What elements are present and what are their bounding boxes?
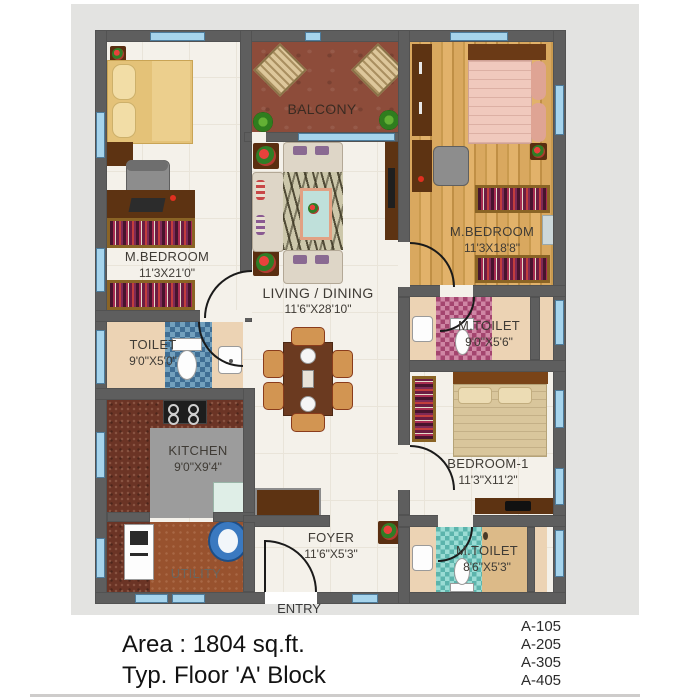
- flower-icon: [112, 48, 124, 60]
- sofa-cushion: [315, 146, 329, 155]
- potted-plant-icon: [253, 112, 273, 132]
- wall-kitchen-top: [95, 388, 255, 400]
- window: [555, 390, 564, 428]
- pillow: [112, 102, 136, 138]
- sofa-pillow: [256, 215, 265, 235]
- door-gap: [398, 242, 410, 287]
- room-name: M.BEDROOM: [440, 224, 544, 241]
- room-label-kitchen: KITCHEN 9'0"X9'4": [150, 443, 246, 475]
- lamp-icon: [418, 176, 424, 182]
- room-name: LIVING / DINING: [256, 284, 380, 302]
- window: [555, 85, 564, 135]
- foyer-flower-pot: [378, 521, 400, 544]
- wardrobe: [475, 185, 550, 213]
- sink-basin-icon: [130, 531, 148, 545]
- wardrobe-handle: [419, 62, 422, 74]
- unit-number: A-405: [521, 672, 561, 690]
- washing-basin: [208, 520, 248, 562]
- entry-label: ENTRY: [260, 601, 338, 618]
- room-label-bedroom1: BEDROOM-1 11'3"X11'2": [437, 456, 539, 488]
- desk-lamp-icon: [170, 195, 176, 201]
- plate-icon: [300, 348, 316, 364]
- room-dim: 11'3X21'0": [117, 266, 217, 282]
- wash-basin: [412, 545, 433, 571]
- door-gap: [398, 445, 410, 490]
- flower-icon: [381, 523, 398, 540]
- balcony-sliding-window: [298, 133, 395, 141]
- room-label-m-bedroom-left: M.BEDROOM 11'3X21'0": [117, 249, 217, 281]
- wall-foyer-right: [398, 527, 410, 604]
- flower-pot: [253, 250, 279, 276]
- sofa-two-seater: [283, 142, 343, 174]
- window: [555, 468, 564, 505]
- area-text: Area : 1804 sq.ft.: [122, 629, 305, 660]
- wall-utility-stub: [107, 512, 150, 522]
- plate-icon: [300, 396, 316, 412]
- wash-basin: [412, 316, 433, 342]
- door-gap: [438, 515, 473, 527]
- room-dim: 11'3"X11'2": [437, 473, 539, 489]
- room-dim: 11'3X18'8": [440, 241, 544, 257]
- coffee-table: [300, 188, 332, 240]
- pillow: [112, 64, 136, 100]
- window: [352, 594, 378, 603]
- dining-chair: [291, 413, 325, 432]
- room-name: KITCHEN: [150, 443, 246, 460]
- room-dim: 9'0"X5'6": [439, 335, 539, 351]
- window: [150, 32, 205, 41]
- window: [96, 432, 105, 478]
- unit-number: A-205: [521, 636, 561, 654]
- bolster-pillow: [531, 61, 546, 100]
- burner-icon: [188, 414, 199, 425]
- room-label-m-bedroom-right: M.BEDROOM 11'3X18'8": [440, 224, 544, 256]
- window: [96, 112, 105, 158]
- unit-number: A-305: [521, 654, 561, 672]
- dining-chair: [332, 382, 353, 410]
- flower-icon: [256, 146, 276, 166]
- sofa-two-seater: [283, 250, 343, 284]
- window: [555, 530, 564, 577]
- drainboard-icon: [130, 553, 148, 556]
- laptop-icon: [129, 198, 166, 212]
- room-name: BALCONY: [272, 100, 372, 118]
- room-name: M.BEDROOM: [117, 249, 217, 266]
- room-name: UTILITY: [160, 566, 232, 583]
- window: [172, 594, 205, 603]
- utility-sink-counter: [124, 524, 154, 580]
- balcony-opening: [252, 132, 266, 142]
- room-label-m-toilet-bottom: M.TOILET 8'6"X5'3": [437, 543, 537, 575]
- room-name: BEDROOM-1: [437, 456, 539, 473]
- bed-left-sheet: [152, 61, 190, 141]
- window: [96, 248, 105, 292]
- sofa-cushion: [315, 255, 329, 264]
- flower-icon: [532, 145, 545, 158]
- room-label-foyer: FOYER 11'6"X5'3": [290, 530, 372, 562]
- wall-bedroom1-bottom: [398, 515, 566, 527]
- floor-plan-page: M.BEDROOM 11'3X21'0" BALCONY M.BEDROOM 1…: [0, 0, 700, 700]
- sofa-cushion: [293, 146, 307, 155]
- wall-foyer-top: [243, 515, 330, 527]
- flower-icon: [256, 253, 276, 273]
- corner-planter: [530, 143, 547, 160]
- table-flowers-icon: [308, 203, 319, 214]
- shower-drain-icon: [483, 532, 488, 540]
- dining-chair: [263, 382, 284, 410]
- basin-center-icon: [218, 529, 238, 553]
- room-dim: 9'0"X5'0": [112, 354, 194, 370]
- wall-bedroom1-top: [398, 360, 566, 372]
- desk-chair: [433, 146, 469, 186]
- pillow: [458, 387, 492, 404]
- room-name: M.TOILET: [439, 318, 539, 335]
- wardrobe-handle: [419, 102, 422, 114]
- room-label-m-toilet-mid: M.TOILET 9'0"X5'6": [439, 318, 539, 350]
- dining-chair: [263, 350, 284, 378]
- window: [96, 330, 105, 384]
- sofa-pillow: [256, 180, 265, 200]
- window: [305, 32, 321, 41]
- unit-number: A-105: [521, 618, 561, 636]
- dresser: [475, 498, 553, 514]
- wardrobe: [475, 255, 550, 283]
- room-label-toilet: TOILET 9'0"X5'0": [112, 337, 194, 369]
- tall-wardrobe: [412, 44, 432, 136]
- sofa-cushion: [293, 255, 307, 264]
- room-label-balcony: BALCONY: [272, 100, 372, 118]
- flower-pot: [253, 143, 279, 169]
- room-dim: 9'0"X9'4": [150, 460, 246, 476]
- room-name: TOILET: [112, 337, 194, 354]
- room-name: FOYER: [290, 530, 372, 547]
- room-dim: 8'6"X5'3": [437, 560, 537, 576]
- floor-text: Typ. Floor 'A' Block: [122, 660, 326, 691]
- dining-chair: [291, 327, 325, 346]
- wardrobe: [107, 218, 195, 248]
- bottom-divider: [30, 694, 640, 697]
- room-dim: 11'6"X28'10": [256, 302, 380, 318]
- wardrobe: [107, 280, 195, 310]
- bed-right-mattress: [468, 60, 532, 144]
- room-label-living-dining: LIVING / DINING 11'6"X28'10": [256, 284, 380, 318]
- wall-utility-right: [243, 522, 255, 592]
- window: [555, 300, 564, 345]
- kitchen-sink: [213, 482, 245, 514]
- dining-chair: [332, 350, 353, 378]
- bed1-headboard: [453, 372, 548, 384]
- room-dim: 11'6"X5'3": [290, 547, 372, 563]
- desk-chair-back: [126, 160, 168, 171]
- table-runner-icon: [302, 370, 314, 388]
- entry-door-leaf: [264, 540, 266, 592]
- room-name: M.TOILET: [437, 543, 537, 560]
- unit-list: A-105 A-205 A-305 A-405: [521, 618, 561, 690]
- burner-icon: [168, 414, 179, 425]
- dresser: [412, 140, 432, 192]
- window: [450, 32, 508, 41]
- bolster-pillow: [531, 103, 546, 142]
- wardrobe: [412, 376, 436, 442]
- room-label-utility: UTILITY: [160, 566, 232, 583]
- window: [135, 594, 168, 603]
- gas-stove: [163, 400, 207, 424]
- tv-icon: [388, 168, 395, 208]
- potted-plant-icon: [379, 110, 399, 130]
- pillow: [498, 387, 532, 404]
- window: [96, 538, 105, 578]
- bed-right-headboard: [468, 44, 546, 60]
- tray-icon: [505, 501, 531, 511]
